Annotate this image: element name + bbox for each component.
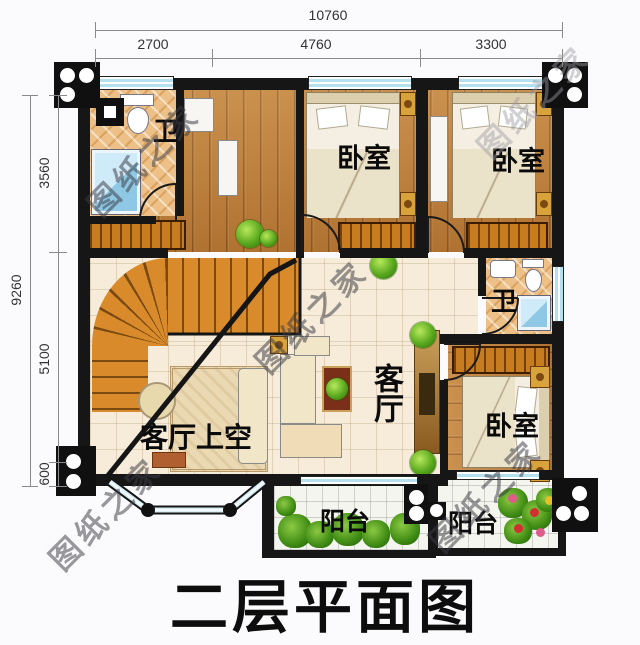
room-label-living: 客厅 — [363, 363, 407, 423]
dim-tick — [562, 22, 563, 38]
room-label-bath-right: 卫 — [491, 282, 517, 319]
page-title: 二层平面图 — [170, 560, 480, 644]
door-arc-bedroom3 — [444, 344, 480, 380]
dim-tick — [49, 486, 67, 487]
dim-top-seg-1: 2700 — [137, 36, 168, 52]
bay-window-post — [223, 503, 237, 517]
room-label-bedroom1: 卧室 — [337, 137, 391, 176]
floor-plan-canvas: 10760 2700 4760 3300 9260 3560 5100 600 — [0, 0, 640, 645]
dim-tick — [22, 95, 38, 96]
door-arc-bedroom1 — [302, 215, 340, 253]
dim-left-seg-3: 600 — [36, 462, 52, 485]
dim-tick — [22, 486, 38, 487]
dim-tick — [95, 49, 96, 67]
bay-window-post — [141, 503, 155, 517]
dim-tick — [562, 49, 563, 67]
dim-left-seg-1: 3560 — [36, 157, 52, 188]
dim-tick — [212, 49, 213, 67]
dim-left-seg-2: 5100 — [36, 343, 52, 374]
dim-line-top-total — [95, 30, 562, 31]
dim-line-top-segments — [95, 58, 562, 59]
dim-top-seg-3: 3300 — [475, 36, 506, 52]
dim-line-left-total — [30, 95, 31, 486]
door-arc-bath-top — [140, 184, 176, 220]
door-arc-bedroom2 — [428, 217, 464, 253]
dim-tick — [95, 22, 96, 38]
room-label-living-void: 客厅上空 — [140, 416, 252, 456]
dim-tick — [49, 252, 67, 253]
dim-line-left-segments — [58, 95, 59, 486]
dim-left-total: 9260 — [8, 274, 24, 305]
dim-top-seg-2: 4760 — [300, 36, 331, 52]
room-label-balcony-left: 阳台 — [320, 502, 370, 538]
dim-tick — [420, 49, 421, 67]
dim-tick — [49, 95, 67, 96]
dim-top-total: 10760 — [309, 7, 348, 23]
